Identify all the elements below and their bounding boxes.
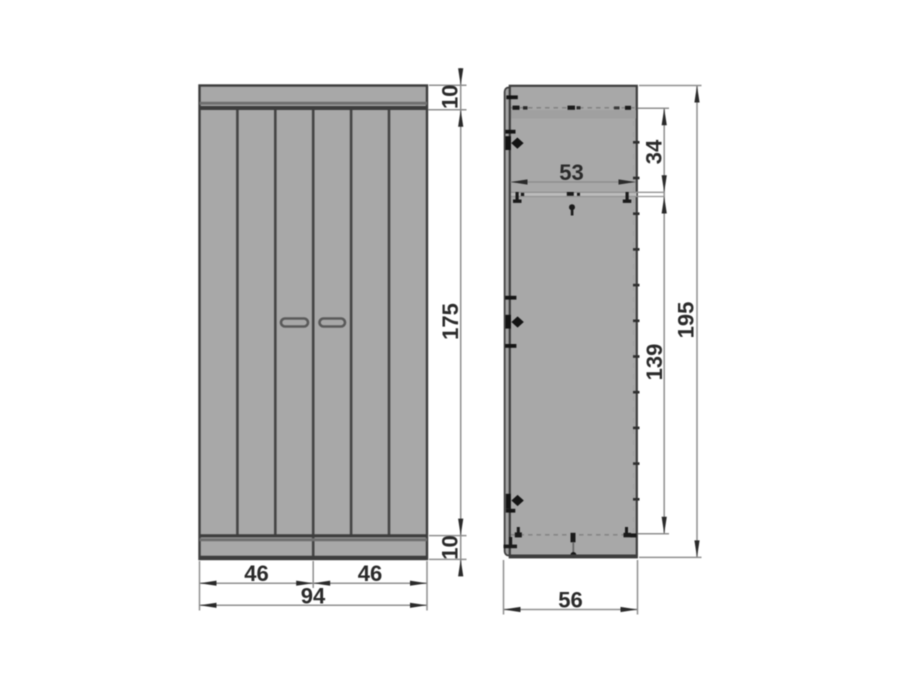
svg-text:56: 56	[558, 588, 582, 613]
svg-text:10: 10	[438, 535, 463, 559]
svg-text:139: 139	[642, 344, 667, 381]
svg-text:94: 94	[301, 584, 326, 609]
svg-text:53: 53	[559, 160, 583, 185]
svg-text:34: 34	[642, 139, 667, 164]
svg-text:10: 10	[438, 85, 463, 109]
svg-text:195: 195	[674, 302, 699, 339]
svg-text:175: 175	[438, 303, 463, 340]
svg-text:46: 46	[358, 561, 382, 586]
svg-text:46: 46	[244, 561, 268, 586]
